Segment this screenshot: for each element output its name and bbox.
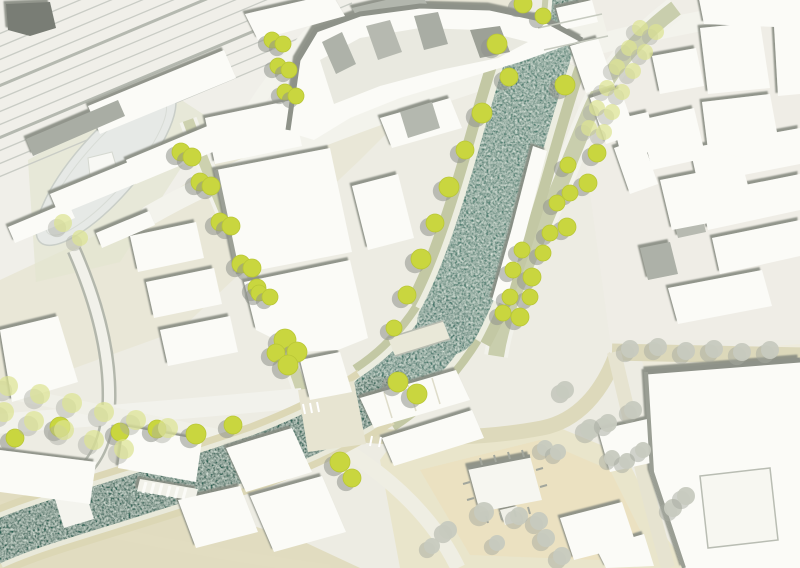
tree-bright <box>535 245 551 261</box>
site-plan-canvas <box>0 0 800 568</box>
tree-bright <box>500 68 518 86</box>
tree-bright <box>542 225 558 241</box>
tree-bright <box>555 75 575 95</box>
tree-pale <box>126 410 146 430</box>
tree-bright <box>224 416 242 434</box>
tree-pale <box>604 104 620 120</box>
tree-bright <box>502 289 518 305</box>
tree-bright <box>487 34 507 54</box>
tree-bright <box>386 320 402 336</box>
tree-bright <box>426 214 444 232</box>
bld-tr-2 <box>700 22 770 94</box>
tree-bright <box>262 289 278 305</box>
tree-bright <box>588 144 606 162</box>
tree-bright <box>281 62 297 78</box>
tree-pale <box>54 214 72 232</box>
tree-bright <box>330 452 350 472</box>
tree-bright <box>388 372 408 392</box>
tree-gray <box>677 342 695 360</box>
tree-pale <box>158 418 178 438</box>
tree-gray <box>733 343 751 361</box>
tree-pale <box>62 393 82 413</box>
tree-pale <box>648 24 664 40</box>
tree-pale <box>114 439 134 459</box>
tree-bright <box>495 305 511 321</box>
tree-bright <box>535 8 551 24</box>
tree-bright <box>243 259 261 277</box>
tree-bright <box>288 88 304 104</box>
tree-bright <box>579 174 597 192</box>
tree-bright <box>549 195 565 211</box>
tree-bright <box>407 384 427 404</box>
tree-bright <box>523 268 541 286</box>
masterplan-svg <box>0 0 800 568</box>
tree-gray <box>705 340 723 358</box>
tree-bright <box>522 289 538 305</box>
tree-gray <box>537 529 555 547</box>
bld-tr-3 <box>774 22 800 96</box>
tree-pale <box>637 44 653 60</box>
tree-gray <box>621 340 639 358</box>
tree-gray <box>599 414 617 432</box>
tree-gray <box>530 512 548 530</box>
bld-mall-2 <box>216 148 352 274</box>
tree-bright <box>343 469 361 487</box>
tree-bright <box>439 177 459 197</box>
tree-pale <box>625 63 641 79</box>
tree-pale <box>30 384 50 404</box>
tree-gray <box>439 521 457 539</box>
tree-bright <box>472 103 492 123</box>
tree-bright <box>183 148 201 166</box>
tree-gray <box>474 502 494 522</box>
tree-pale <box>24 411 44 431</box>
bld-tr-8 <box>652 48 704 94</box>
tree-gray <box>553 547 571 565</box>
tree-pale <box>596 124 612 140</box>
tree-gray <box>424 538 440 554</box>
tree-bright <box>411 249 431 269</box>
tree-bright <box>278 355 298 375</box>
tree-bright <box>456 141 474 159</box>
tree-gray <box>556 381 574 399</box>
tree-bright <box>558 218 576 236</box>
tree-bright <box>560 157 576 173</box>
tree-bright <box>275 36 291 52</box>
tree-bright <box>562 185 578 201</box>
tree-gray <box>489 535 505 551</box>
tree-bright <box>186 424 206 444</box>
tree-gray <box>649 338 667 356</box>
tree-bright <box>514 242 530 258</box>
tree-gray <box>635 442 651 458</box>
tree-pale <box>84 430 104 450</box>
tree-bright <box>398 286 416 304</box>
tree-pale <box>94 402 114 422</box>
tree-gray <box>761 341 779 359</box>
tree-bright <box>505 262 521 278</box>
tree-gray <box>550 444 566 460</box>
tree-bright <box>222 217 240 235</box>
tree-pale <box>72 230 88 246</box>
tree-gray <box>677 487 695 505</box>
tree-pale <box>614 84 630 100</box>
tree-pale <box>54 420 74 440</box>
tree-bright <box>511 308 529 326</box>
bld-se-courtyard <box>700 468 778 548</box>
tree-gray <box>624 401 642 419</box>
tree-bright <box>202 177 220 195</box>
